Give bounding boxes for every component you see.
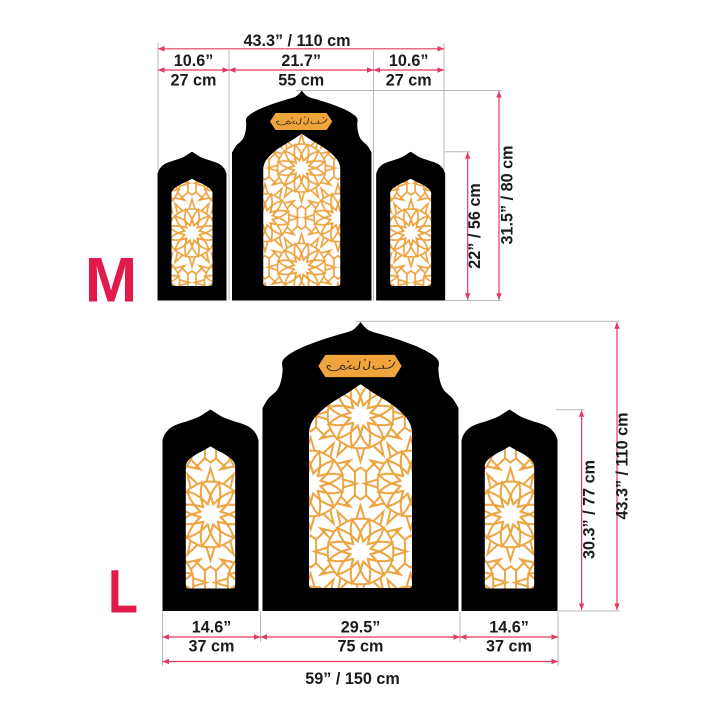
svg-text:22” / 56 cm: 22” / 56 cm — [466, 183, 484, 269]
svg-text:10.6”: 10.6” — [174, 52, 214, 70]
svg-text:31.5” / 80 cm: 31.5” / 80 cm — [499, 146, 517, 245]
svg-text:75 cm: 75 cm — [338, 638, 384, 656]
svg-text:27 cm: 27 cm — [386, 72, 432, 90]
svg-text:L: L — [108, 557, 138, 625]
svg-text:30.3” / 77 cm: 30.3” / 77 cm — [580, 460, 598, 559]
svg-text:37 cm: 37 cm — [189, 638, 235, 656]
svg-text:37 cm: 37 cm — [486, 638, 532, 656]
svg-text:27 cm: 27 cm — [171, 72, 217, 90]
svg-text:55 cm: 55 cm — [278, 72, 324, 90]
svg-text:29.5”: 29.5” — [341, 619, 381, 637]
svg-text:14.6”: 14.6” — [192, 619, 232, 637]
svg-text:43.3” / 110 cm: 43.3” / 110 cm — [243, 32, 350, 50]
svg-text:43.3” / 110 cm: 43.3” / 110 cm — [614, 412, 632, 519]
svg-text:10.6”: 10.6” — [389, 52, 429, 70]
svg-text:M: M — [85, 246, 137, 316]
svg-text:59” / 150 cm: 59” / 150 cm — [305, 670, 400, 688]
svg-text:14.6”: 14.6” — [489, 619, 529, 637]
svg-text:21.7”: 21.7” — [281, 52, 321, 70]
